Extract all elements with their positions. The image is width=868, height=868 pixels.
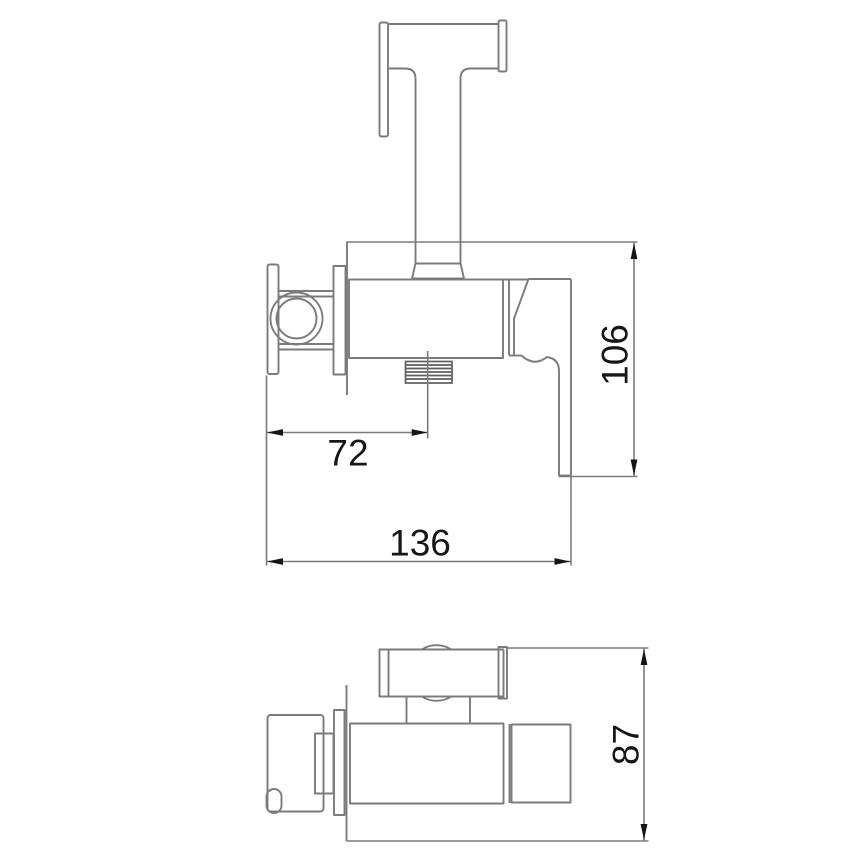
technical-drawing-canvas: 106 72 136 87 <box>0 0 868 868</box>
dim-offset-arrow-left <box>267 429 283 436</box>
dimension-height: 106 <box>347 242 638 477</box>
pipe-collar <box>412 264 464 279</box>
holder-hook-slot <box>267 789 282 813</box>
valve-body-block <box>349 280 503 359</box>
top-wall-plate-face <box>334 710 345 815</box>
dim-depth-value: 87 <box>606 724 647 765</box>
dim-depth-arrow-bottom <box>641 824 648 840</box>
lever-inner-edge <box>547 357 560 476</box>
top-valve-body <box>350 724 571 804</box>
cartridge-dome-arc <box>522 356 548 362</box>
wall-plate <box>334 242 348 396</box>
top-sprayer-holder <box>267 715 334 813</box>
side-view <box>268 21 572 476</box>
dimension-depth: 87 <box>347 648 649 841</box>
dimension-width: 136 <box>267 477 572 566</box>
top-spout-cap <box>512 725 571 803</box>
dim-depth-arrow-top <box>641 649 648 665</box>
dim-width-arrow-right <box>555 558 571 565</box>
dim-height-arrow-bottom <box>631 460 638 476</box>
valve-body <box>349 280 529 359</box>
dim-offset-value: 72 <box>327 433 368 474</box>
wall-plate-face <box>334 266 346 375</box>
cross-handle-knob <box>268 265 335 375</box>
top-cross-handle <box>380 645 508 723</box>
outlet-thread-lines <box>406 365 453 379</box>
lever-handle <box>509 279 571 476</box>
sprayer-end-cap <box>499 21 507 72</box>
top-view <box>267 645 571 841</box>
dim-height-value: 106 <box>595 324 636 386</box>
dim-offset-arrow-right <box>412 429 428 436</box>
lever-left-slant <box>514 279 529 355</box>
pipe-collar-left-flare <box>412 264 416 279</box>
sprayer-grip-bar <box>380 23 389 137</box>
threaded-outlet <box>406 351 453 439</box>
dim-width-arrow-left <box>267 558 283 565</box>
pipe-collar-right-flare <box>461 264 465 279</box>
top-handle-bar <box>380 650 504 697</box>
sprayer-stem-right <box>461 69 499 264</box>
knob-hub-inner <box>277 299 317 339</box>
top-body-block <box>350 724 504 804</box>
sprayer-stem-left <box>388 69 416 264</box>
sprayer-head <box>380 21 507 264</box>
dim-width-value: 136 <box>389 523 451 564</box>
dim-height-arrow-top <box>631 243 638 259</box>
top-wall-plate <box>334 685 347 841</box>
